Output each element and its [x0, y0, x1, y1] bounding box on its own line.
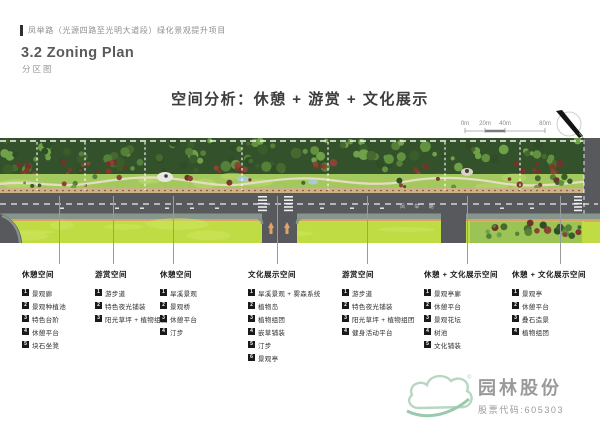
- zone-item: 2特色夜光铺装: [95, 302, 168, 309]
- title-accent-bar: [20, 25, 23, 36]
- item-number-badge: 4: [248, 328, 255, 335]
- zone-item-label: 叠石造景: [522, 314, 549, 324]
- item-number-badge: 3: [22, 315, 29, 322]
- zone-item-label: 景观亭: [258, 353, 278, 363]
- zone-item: 5文化铺装: [424, 341, 498, 348]
- zone-item: 4汀步: [160, 328, 197, 335]
- branch-road: [441, 214, 466, 244]
- zone-item: 5汀步: [248, 341, 321, 348]
- cloud-logo-icon: ®: [403, 372, 475, 418]
- zone-column-2: 游赏空间1游步道2特色夜光铺装3阳光草坪 + 植物组团: [95, 269, 168, 328]
- zone-item-label: 汀步: [258, 340, 272, 350]
- section-subtitle: 分区图: [22, 63, 54, 75]
- zone-item: 5块石坐凳: [22, 341, 66, 348]
- zone-item-label: 休憩平台: [522, 301, 549, 311]
- zone-item-label: 植物组团: [258, 314, 285, 324]
- item-number-badge: 1: [95, 289, 102, 296]
- zone-column-1: 休憩空间1景观廊2景观种植池3特色台阶4休憩平台5块石坐凳: [22, 269, 66, 354]
- item-number-badge: 4: [342, 328, 349, 335]
- zone-title: 休憩空间: [160, 269, 197, 280]
- zone-item-label: 阳光草坪 + 植物组团: [352, 314, 415, 324]
- registered-mark: ®: [467, 374, 472, 381]
- item-number-badge: 3: [248, 315, 255, 322]
- zone-item: 4植物组团: [512, 328, 586, 335]
- item-number-badge: 2: [22, 302, 29, 309]
- zone-item: 2植物岛: [248, 302, 321, 309]
- zone-item-label: 景观花坛: [434, 314, 461, 324]
- item-number-badge: 1: [342, 289, 349, 296]
- zone-item-label: 休憩平台: [434, 301, 461, 311]
- item-number-badge: 1: [160, 289, 167, 296]
- item-number-badge: 2: [248, 302, 255, 309]
- zone-title: 休憩 + 文化展示空间: [424, 269, 498, 280]
- item-number-badge: 3: [95, 315, 102, 322]
- leader-line: [560, 196, 561, 264]
- leader-line: [277, 196, 278, 264]
- item-number-badge: 3: [342, 315, 349, 322]
- item-number-badge: 1: [22, 289, 29, 296]
- section-title: 3.2 Zoning Plan: [21, 45, 134, 61]
- zone-item-label: 游步道: [105, 288, 125, 298]
- tree-band: [0, 138, 600, 176]
- zone-item: 2特色夜光铺装: [342, 302, 415, 309]
- zone-item: 3叠石造景: [512, 315, 586, 322]
- zone-item: 1景观亭: [512, 289, 586, 296]
- zone-item: 3植物组团: [248, 315, 321, 322]
- scale-label-0: 0m: [461, 121, 469, 127]
- zone-item: 6景观亭: [248, 354, 321, 361]
- zone-item: 4树池: [424, 328, 498, 335]
- item-number-badge: 3: [424, 315, 431, 322]
- scale-bar: 0m 20m 40m 80m: [461, 121, 551, 133]
- zone-item: 2休憩平台: [512, 302, 586, 309]
- zone-item-label: 休憩平台: [32, 327, 59, 337]
- zone-item-label: 景观廊: [32, 288, 52, 298]
- zone-item-label: 休憩平台: [170, 314, 197, 324]
- zone-item: 1旱溪景观: [160, 289, 197, 296]
- zone-item-label: 植物岛: [258, 301, 278, 311]
- item-number-badge: 2: [160, 302, 167, 309]
- zone-column-4: 文化展示空间1旱溪景观 + 雾森系统2植物岛3植物组团4嵌草铺装5汀步6景观亭: [248, 269, 321, 367]
- item-number-badge: 2: [512, 302, 519, 309]
- pavilion-icon: [164, 174, 168, 178]
- item-number-badge: 1: [424, 289, 431, 296]
- zone-item-label: 景观种植池: [32, 301, 66, 311]
- zone-item: 4休憩平台: [22, 328, 66, 335]
- scale-label-20: 20m: [479, 121, 491, 127]
- zone-item-label: 特色夜光铺装: [352, 301, 393, 311]
- zone-item: 2休憩平台: [424, 302, 498, 309]
- zone-item-label: 嵌草铺装: [258, 327, 285, 337]
- project-title: 凤举路（光源四路至光明大道段）绿化景观提升项目: [28, 25, 226, 36]
- zone-title: 游赏空间: [95, 269, 168, 280]
- project-header: 凤举路（光源四路至光明大道段）绿化景观提升项目: [20, 25, 226, 36]
- zone-item: 3阳光草坪 + 植物组团: [342, 315, 415, 322]
- zone-title: 游赏空间: [342, 269, 415, 280]
- leader-line: [367, 196, 368, 264]
- item-number-badge: 4: [424, 328, 431, 335]
- item-number-badge: 4: [512, 328, 519, 335]
- zone-item: 1游步道: [342, 289, 415, 296]
- zone-item: 2景观种植池: [22, 302, 66, 309]
- leader-line: [467, 196, 468, 264]
- item-number-badge: 5: [248, 341, 255, 348]
- zone-item-label: 景观亭廊: [434, 288, 461, 298]
- item-number-badge: 1: [248, 289, 255, 296]
- road-name: 凤 举 路: [400, 203, 438, 210]
- zone-item-label: 旱溪景观: [170, 288, 197, 298]
- item-number-badge: 6: [248, 354, 255, 361]
- zone-item: 4嵌草铺装: [248, 328, 321, 335]
- company-logo: ® 园林股份 股票代码:605303: [403, 372, 593, 418]
- item-number-badge: 4: [160, 328, 167, 335]
- zone-item: 1景观廊: [22, 289, 66, 296]
- zone-item-label: 块石坐凳: [32, 340, 59, 350]
- item-number-badge: 3: [512, 315, 519, 322]
- zone-item-label: 景观亭: [522, 288, 542, 298]
- zone-item: 3休憩平台: [160, 315, 197, 322]
- sidewalk: [0, 188, 600, 193]
- zone-item: 1旱溪景观 + 雾森系统: [248, 289, 321, 296]
- masterplan-image: 凤 举 路: [0, 138, 600, 243]
- zone-column-5: 游赏空间1游步道2特色夜光铺装3阳光草坪 + 植物组团4健身活动平台: [342, 269, 415, 341]
- leader-line: [113, 196, 114, 264]
- zone-item-label: 特色夜光铺装: [105, 301, 146, 311]
- zone-item: 1景观亭廊: [424, 289, 498, 296]
- item-number-badge: 3: [160, 315, 167, 322]
- zone-item-label: 游步道: [352, 288, 372, 298]
- pavilion-icon: [465, 169, 469, 173]
- zone-item: 3景观花坛: [424, 315, 498, 322]
- zone-item-label: 树池: [434, 327, 448, 337]
- zone-item-label: 汀步: [170, 327, 184, 337]
- scale-label-80: 80m: [539, 121, 551, 127]
- zone-column-7: 休憩 + 文化展示空间1景观亭2休憩平台3叠石造景4植物组团: [512, 269, 586, 341]
- item-number-badge: 2: [95, 302, 102, 309]
- item-number-badge: 1: [512, 289, 519, 296]
- zone-column-3: 休憩空间1旱溪景观2景观桥3休憩平台4汀步: [160, 269, 197, 341]
- item-number-badge: 5: [22, 341, 29, 348]
- leader-line: [59, 196, 60, 264]
- pond: [308, 180, 318, 185]
- masterplan-svg: 凤 举 路: [0, 138, 600, 243]
- zone-title: 休憩 + 文化展示空间: [512, 269, 586, 280]
- leader-line: [173, 196, 174, 264]
- zone-item: 1游步道: [95, 289, 168, 296]
- zone-item: 3特色台阶: [22, 315, 66, 322]
- company-name: 园林股份: [478, 374, 564, 400]
- intersection-road: [262, 214, 297, 244]
- zone-title: 文化展示空间: [248, 269, 321, 280]
- stock-code: 股票代码:605303: [478, 403, 564, 416]
- zone-column-6: 休憩 + 文化展示空间1景观亭廊2休憩平台3景观花坛4树池5文化铺装: [424, 269, 498, 354]
- item-number-badge: 2: [424, 302, 431, 309]
- zone-item: 3阳光草坪 + 植物组团: [95, 315, 168, 322]
- pond: [237, 176, 249, 182]
- item-number-badge: 2: [342, 302, 349, 309]
- zone-item-label: 特色台阶: [32, 314, 59, 324]
- scale-label-40: 40m: [499, 121, 511, 127]
- zone-item: 4健身活动平台: [342, 328, 415, 335]
- zone-item-label: 景观桥: [170, 301, 190, 311]
- zone-title: 休憩空间: [22, 269, 66, 280]
- item-number-badge: 5: [424, 341, 431, 348]
- zone-item-label: 旱溪景观 + 雾森系统: [258, 288, 321, 298]
- zone-item-label: 植物组团: [522, 327, 549, 337]
- zone-item-label: 健身活动平台: [352, 327, 393, 337]
- zone-item-label: 阳光草坪 + 植物组团: [105, 314, 168, 324]
- zone-item-label: 文化铺装: [434, 340, 461, 350]
- item-number-badge: 4: [22, 328, 29, 335]
- zone-item: 2景观桥: [160, 302, 197, 309]
